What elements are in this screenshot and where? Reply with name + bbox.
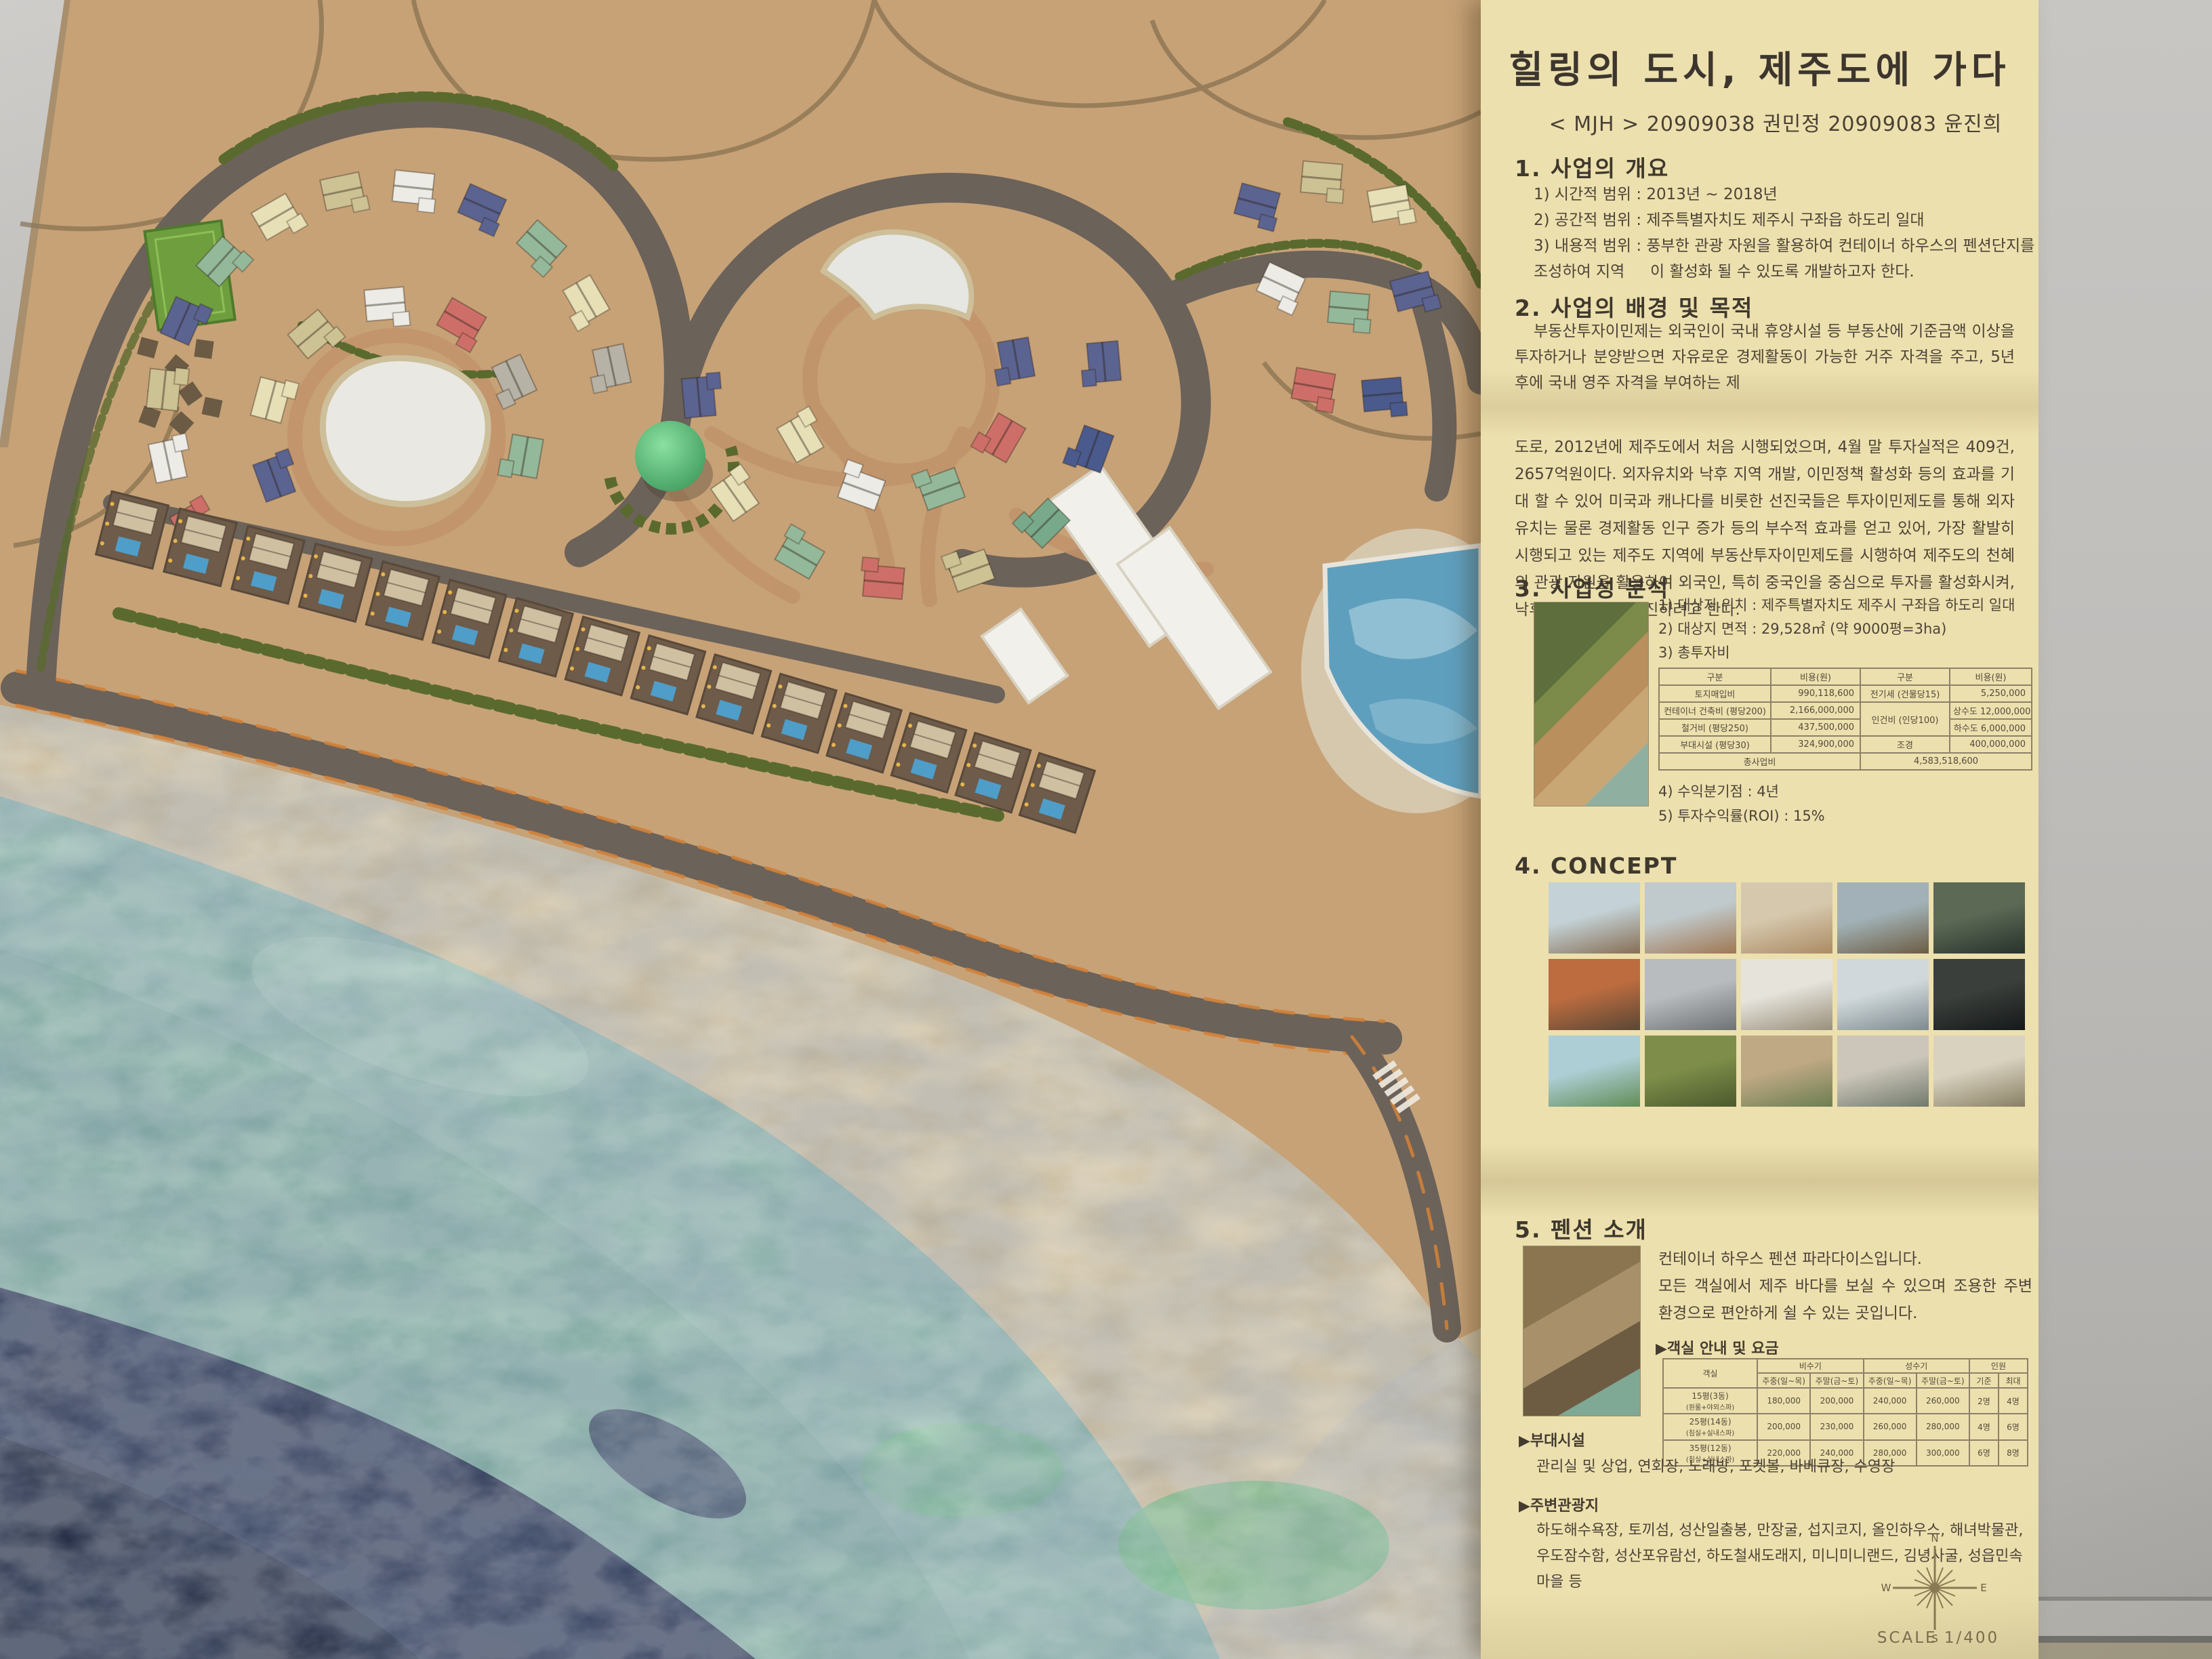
cost-cell: 조경 <box>1860 736 1950 753</box>
cost-header: 비용(원) <box>1771 668 1860 685</box>
concept-photo <box>1933 1036 2025 1107</box>
section1-item: 1) 시간적 범위 : 2013년 ~ 2018년 <box>1534 182 1778 207</box>
room-header: 비수기 <box>1757 1359 1863 1373</box>
cost-total-label: 총사업비 <box>1659 753 1860 770</box>
room-cell: 4명 <box>1999 1388 2028 1414</box>
cost-cell: 부대시설 (평당30) <box>1659 736 1771 753</box>
concept-photo <box>1933 882 2025 954</box>
room-cell: 4명 <box>1969 1414 1999 1439</box>
room-cell: 6명 <box>1969 1440 1999 1466</box>
room-subheader: 주중(일~목) <box>1757 1373 1810 1387</box>
compass-e: E <box>1980 1582 1986 1594</box>
cost-cell: 인건비 (인당100) <box>1860 702 1950 736</box>
room-cell: 240,000 <box>1864 1388 1917 1414</box>
paper-fold <box>1481 1144 2039 1218</box>
room-cell: 200,000 <box>1757 1414 1810 1439</box>
section5-heading: 5. 펜션 소개 <box>1515 1212 1647 1244</box>
cost-cell: 437,500,000 <box>1771 719 1860 736</box>
cost-cell: 컨테이너 건축비 (평당200) <box>1659 702 1771 719</box>
room-cell: 260,000 <box>1864 1414 1917 1439</box>
concept-photo <box>1645 1036 1736 1107</box>
section2-paragraph: 부동산투자이민제는 외국인이 국내 휴양시설 등 부동산에 기준금액 이상을 투… <box>1515 319 2015 396</box>
section3-item: 5) 투자수익률(ROI) : 15% <box>1658 805 1825 825</box>
section3-item: 3) 총투자비 <box>1658 641 1730 665</box>
cost-header: 구분 <box>1860 668 1950 685</box>
cost-header: 비용(원) <box>1950 668 2032 685</box>
cost-cell: 하수도 6,000,000 <box>1950 719 2032 736</box>
site-model <box>0 0 1481 1659</box>
concept-photo <box>1549 1036 1640 1107</box>
pension-photo-thumbnail <box>1523 1246 1641 1416</box>
cost-header: 구분 <box>1659 668 1771 685</box>
section3-item: 2) 대상지 면적 : 29,528㎡ (약 9000평=3ha) <box>1658 617 1946 641</box>
room-cell: 280,000 <box>1917 1414 1969 1439</box>
concept-photo <box>1837 1036 1929 1107</box>
panel-subtitle: < MJH > 20909038 권민정 20909083 윤진희 <box>1521 107 2030 137</box>
room-cell: 180,000 <box>1757 1388 1810 1414</box>
cost-cell: 400,000,000 <box>1950 736 2032 753</box>
room-cell: 15평(3동)(원룸+야외스파) <box>1663 1388 1757 1414</box>
room-subheader: 주말(금~토) <box>1810 1373 1863 1387</box>
compass-w: W <box>1881 1582 1891 1594</box>
section1-heading: 1. 사업의 개요 <box>1515 150 1669 183</box>
concept-photo <box>1645 959 1736 1030</box>
pension-desc: 모든 객실에서 제주 바다를 보실 수 있으며 조용한 주변 환경으로 편안하게… <box>1658 1273 2032 1327</box>
photo-of-architectural-model-board: 힐링의 도시, 제주도에 가다 < MJH > 20909038 권민정 209… <box>0 0 2212 1659</box>
facilities-text: 관리실 및 상업, 연회장, 노래방, 포켓볼, 바베큐장, 수영장 <box>1536 1454 1895 1476</box>
room-header: 인원 <box>1969 1359 2028 1373</box>
cost-cell: 철거비 (평당250) <box>1659 719 1771 736</box>
panel-title: 힐링의 도시, 제주도에 가다 <box>1481 39 2039 94</box>
attractions-label: ▶주변관광지 <box>1519 1494 1599 1515</box>
room-cell: 300,000 <box>1917 1440 1969 1466</box>
concept-photo <box>1549 959 1640 1030</box>
cost-cell: 990,118,600 <box>1771 685 1860 702</box>
concept-photo <box>1741 1036 1832 1107</box>
cost-cell: 2,166,000,000 <box>1771 702 1860 719</box>
room-cell: 25평(14동)(침실+실내스파) <box>1663 1414 1757 1439</box>
section3-item: 4) 수익분기점 : 4년 <box>1658 781 1779 801</box>
cost-cell: 전기세 (건물당15) <box>1860 685 1950 702</box>
room-subheader: 주중(일~목) <box>1864 1373 1917 1387</box>
room-table-caption: ▶객실 안내 및 요금 <box>1656 1336 1779 1358</box>
room-cell: 230,000 <box>1810 1414 1863 1439</box>
room-header: 성수기 <box>1864 1359 1969 1373</box>
info-panel: 힐링의 도시, 제주도에 가다 < MJH > 20909038 권민정 209… <box>1481 0 2039 1659</box>
cost-table: 구분 비용(원) 구분 비용(원) 토지매입비 990,118,600 전기세 … <box>1658 668 2032 771</box>
room-cell: 8명 <box>1999 1440 2028 1466</box>
concept-photo <box>1741 959 1832 1030</box>
facilities-label: ▶부대시설 <box>1519 1429 1585 1450</box>
background-wall <box>2039 0 2212 1659</box>
section1-item: 2) 공간적 범위 : 제주특별자치도 제주시 구좌읍 하도리 일대 <box>1534 207 1925 233</box>
room-cell: 2명 <box>1969 1388 1999 1414</box>
room-subheader: 최대 <box>1999 1373 2028 1387</box>
compass-n: N <box>1931 1532 1938 1544</box>
cost-total-value: 4,583,518,600 <box>1860 753 2032 770</box>
compass-rose-icon: N E S W <box>1877 1530 1992 1645</box>
cost-cell: 324,900,000 <box>1771 736 1860 753</box>
section2-heading: 2. 사업의 배경 및 목적 <box>1515 290 1753 323</box>
room-cell: 200,000 <box>1810 1388 1863 1414</box>
room-subheader: 기준 <box>1969 1373 1999 1387</box>
pond-west <box>323 358 488 504</box>
room-header: 객실 <box>1663 1359 1757 1388</box>
section3-heading: 3. 사업성 분석 <box>1515 571 1669 603</box>
cost-cell: 토지매입비 <box>1659 685 1771 702</box>
concept-photo-grid <box>1549 882 2025 1107</box>
concept-photo <box>1933 959 2025 1030</box>
scale-label: SCALE 1/400 <box>1857 1629 2020 1647</box>
baseboard <box>2039 1597 2212 1659</box>
concept-photo <box>1645 882 1736 954</box>
concept-photo <box>1837 882 1929 954</box>
concept-photo <box>1549 882 1640 954</box>
concept-photo <box>1741 882 1832 954</box>
section1-item: 이 활성화 될 수 있도록 개발하고자 한다. <box>1650 259 1914 285</box>
pension-desc: 컨테이너 하우스 펜션 파라다이스입니다. <box>1658 1246 2032 1273</box>
aerial-photo-thumbnail <box>1534 602 1649 806</box>
cost-cell: 상수도 12,000,000 <box>1950 702 2032 719</box>
room-subheader: 주말(금~토) <box>1917 1373 1969 1387</box>
room-rate-table: 객실비수기성수기인원주중(일~목)주말(금~토)주중(일~목)주말(금~토)기준… <box>1662 1358 2028 1467</box>
concept-photo <box>1837 959 1929 1030</box>
section4-heading: 4. CONCEPT <box>1515 853 1677 879</box>
room-cell: 6명 <box>1999 1414 2028 1439</box>
cost-cell: 5,250,000 <box>1950 685 2032 702</box>
room-cell: 260,000 <box>1917 1388 1969 1414</box>
section3-item: 1) 대상지 위치 : 제주특별자치도 제주시 구좌읍 하도리 일대 <box>1658 594 2015 617</box>
